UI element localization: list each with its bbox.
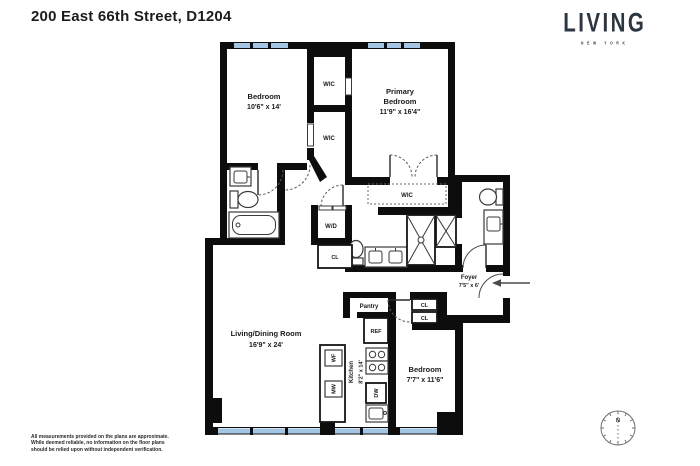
hall-closet-label: CL [331, 255, 339, 261]
foyer-dims: 7'5" x 6' [459, 283, 480, 289]
dw-label: DW [374, 388, 380, 398]
primary-bedroom-dims: 11'9" x 16'4" [380, 109, 421, 116]
disclaimer: All measurements provided on the plans a… [31, 434, 169, 453]
closet-lower-label: CL [421, 316, 429, 322]
mw-label: MW [332, 383, 338, 394]
bath1-tub [229, 212, 279, 238]
hall-bath-shower [436, 215, 456, 247]
hall-bath-toilet [480, 189, 504, 205]
kitchen-label: Kitchen [349, 361, 355, 383]
primary-bath-vanity [365, 247, 407, 267]
wf-label: WF [332, 353, 338, 362]
bedroom3-label: Bedroom [409, 365, 442, 374]
wic-primary-label: WIC [401, 193, 413, 199]
entry-arrow-head [492, 279, 501, 287]
primary-bedroom-label-2: Bedroom [384, 97, 417, 106]
closet-upper-label: CL [421, 303, 429, 309]
primary-bedroom-label-1: Primary [386, 87, 415, 96]
bath1-sink [230, 167, 251, 186]
foyer-label: Foyer [461, 275, 478, 281]
compass: N [601, 411, 635, 445]
kitchen-label-group: Kitchen 8'2" x 14' [349, 360, 365, 384]
bedroom1-dims: 10'6" x 14' [247, 104, 281, 111]
hall-bath-sink [484, 210, 503, 244]
disclaimer-line-3: should be relied upon without independen… [31, 447, 169, 453]
wic-top-door [346, 78, 352, 95]
bath1-toilet [230, 191, 258, 208]
living-dining-label: Living/Dining Room [231, 329, 302, 338]
living-dining-dims: 16'9" x 24' [249, 342, 283, 349]
disclaimer-line-2: While deemed reliable, no information on… [31, 440, 169, 446]
bedroom3-dims: 7'7" x 11'6" [407, 377, 444, 384]
range [366, 348, 388, 374]
kitchen-dims: 8'2" x 14' [359, 360, 365, 384]
wic-mid-label: WIC [323, 136, 335, 142]
floorplan-page: 200 East 66th Street, D1204 LIVING NEW Y… [0, 0, 700, 466]
kitchen-sink [366, 405, 388, 422]
wic-mid-door [308, 124, 314, 146]
compass-north-label: N [616, 418, 620, 424]
primary-bath-shower [407, 215, 435, 265]
pantry-label: Pantry [360, 304, 379, 310]
floorplan-drawing: Bedroom 10'6" x 14' Primary Bedroom 11'9… [0, 0, 700, 466]
ref-label: REF [371, 329, 383, 335]
bedroom1-label: Bedroom [248, 92, 281, 101]
washer-dryer-label: W/D [325, 224, 337, 230]
wic-top-label: WIC [323, 82, 335, 88]
